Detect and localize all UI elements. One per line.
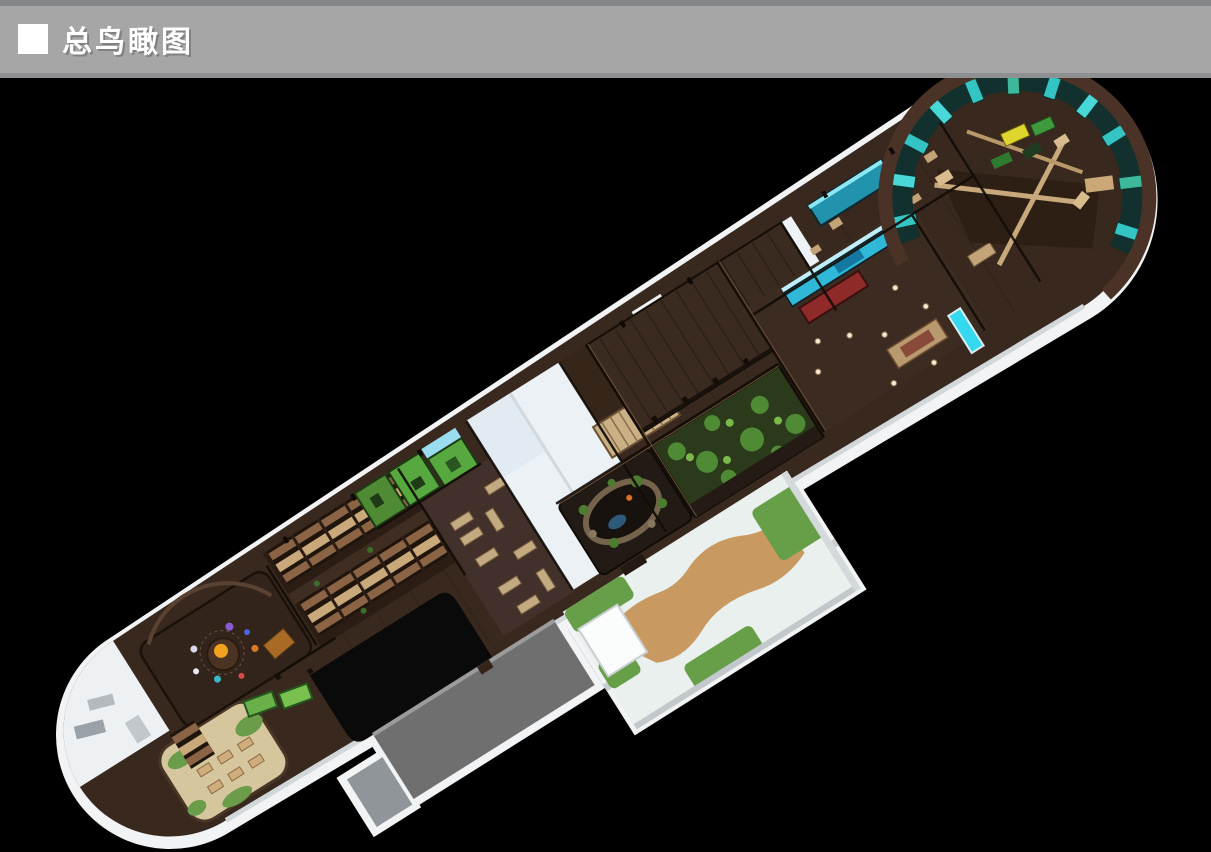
rendering-canvas [0,78,1211,852]
page-title: 总鸟瞰图 [62,17,194,61]
slide-page: { "header": { "title": "总鸟瞰图", "bullet_i… [0,0,1211,852]
birdseye-rendering [0,78,1211,852]
title-bullet-square-icon [18,24,48,54]
header-bar: 总鸟瞰图 [0,0,1211,78]
